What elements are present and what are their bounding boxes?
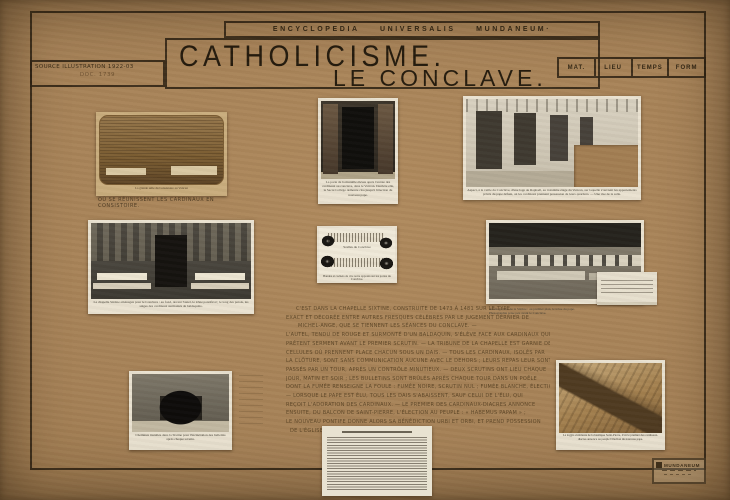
- note-line: reçoit l'adoration des cardinaux. — Le p…: [286, 401, 550, 410]
- facet-forme: FORM: [669, 59, 704, 76]
- photo-porte-muree: La porte de la muraille élevée après l'e…: [318, 98, 398, 204]
- photo-print-caption: La chapelle Sixtine aménagée pour le Con…: [91, 300, 251, 308]
- photo-loges-raphael: Aspect, à la veille du Conclave, d'une l…: [463, 96, 641, 200]
- facet-lieu: LIEU: [596, 59, 633, 76]
- sistine-thrones-photo: [91, 223, 251, 299]
- card-scelles-conclave: Scellés du Conclave Bandes et cachets de…: [317, 226, 397, 283]
- note-line: Michel-Ange, que se tiennent les séances…: [286, 322, 550, 331]
- note-line: cellules où prennent place chacun sous u…: [286, 349, 550, 358]
- stamp-label: MUNDANEUM: [664, 463, 700, 468]
- facet-temps: TEMPS: [633, 59, 670, 76]
- page-subtitle: LE CONCLAVE.: [333, 65, 547, 92]
- photo-extension-slip: [597, 272, 657, 305]
- photo-sixtine-trones: La chapelle Sixtine aménagée pour le Con…: [88, 220, 254, 314]
- engraving-consistory-hall: [99, 115, 224, 185]
- mundaneum-stamp: MUNDANEUM: [652, 458, 706, 484]
- source-reference: Source Illustration 1922-03: [35, 64, 160, 70]
- collection-header-box: ENCYCLOPEDIA UNIVERSALIS MUNDANEUM·: [224, 21, 600, 38]
- note-line: C'est dans la chapelle Sixtine, construi…: [286, 305, 550, 314]
- st-peters-loggia-photo: [559, 363, 662, 433]
- pencil-marginalia: [239, 372, 263, 424]
- note-line: L'autel, tendu de rouge et surmonté d'un…: [286, 331, 550, 340]
- note-line: jour, matin et soir ; les bulletins sont…: [286, 375, 550, 384]
- photo-poele-bulletins: Cheminée installée dans la Sixtine pour …: [129, 371, 232, 450]
- photo-print-caption: Cheminée installée dans la Sixtine pour …: [132, 433, 229, 441]
- walled-door-photo: [321, 101, 395, 179]
- document-number: Doc. 1739: [35, 72, 160, 78]
- photo-print-caption: Aspect, à la veille du Conclave, d'une l…: [466, 188, 638, 196]
- note-line: prêtent serment avant le premier scrutin…: [286, 340, 550, 349]
- collection-name: ENCYCLOPEDIA UNIVERSALIS MUNDANEUM·: [273, 26, 551, 33]
- note-line: exact et décorée entre autres fresques c…: [286, 314, 550, 323]
- stamp-number-marks: [662, 470, 700, 476]
- title-box: CATHOLICISME. LE CONCLAVE.: [165, 38, 600, 89]
- ballot-stove-photo: [132, 374, 229, 432]
- note-line: passés par un tour, après un contrôle mi…: [286, 366, 550, 375]
- wax-seals-card: Scellés du Conclave: [319, 228, 395, 274]
- seals-card-label: Scellés du Conclave: [319, 246, 395, 250]
- photo-print-caption: Bandes et cachets de cire noire apposés …: [319, 275, 395, 282]
- handwritten-note: C'est dans la chapelle Sixtine, construi…: [286, 305, 550, 436]
- facet-header-boxes: MAT. LIEU TEMPS FORM: [557, 57, 706, 78]
- photo-print-caption: La loggia extérieure de la basilique Sai…: [559, 434, 662, 441]
- cut-out-notch: [574, 145, 638, 187]
- note-line: — Lorsque le pape est élu, tous les dais…: [286, 392, 550, 401]
- handwritten-caption: Où se réunissent les cardinaux en consis…: [98, 197, 250, 209]
- note-line: la clôture, sont sans communication aucu…: [286, 357, 550, 366]
- archive-sheet: ENCYCLOPEDIA UNIVERSALIS MUNDANEUM· CATH…: [0, 0, 730, 500]
- photo-print-caption: La grande salle du Consistoire au Vatica…: [99, 186, 224, 190]
- stamp-logo-icon: [656, 462, 662, 468]
- photo-loggia-saint-pierre: La loggia extérieure de la basilique Sai…: [556, 360, 665, 450]
- note-line: dont la fumée renseigne la foule : fumée…: [286, 383, 550, 392]
- source-box: Source Illustration 1922-03 Doc. 1739: [30, 60, 165, 87]
- facet-matiere: MAT.: [559, 59, 596, 76]
- press-clipping: [322, 426, 432, 496]
- photo-salle-consistoire: La grande salle du Consistoire au Vatica…: [96, 112, 227, 196]
- photo-print-caption: La porte de la muraille élevée après l'e…: [321, 180, 395, 197]
- raphael-loggia-photo: [466, 99, 638, 187]
- note-line: ensuite, du balcon de Saint-Pierre, l'él…: [286, 409, 550, 418]
